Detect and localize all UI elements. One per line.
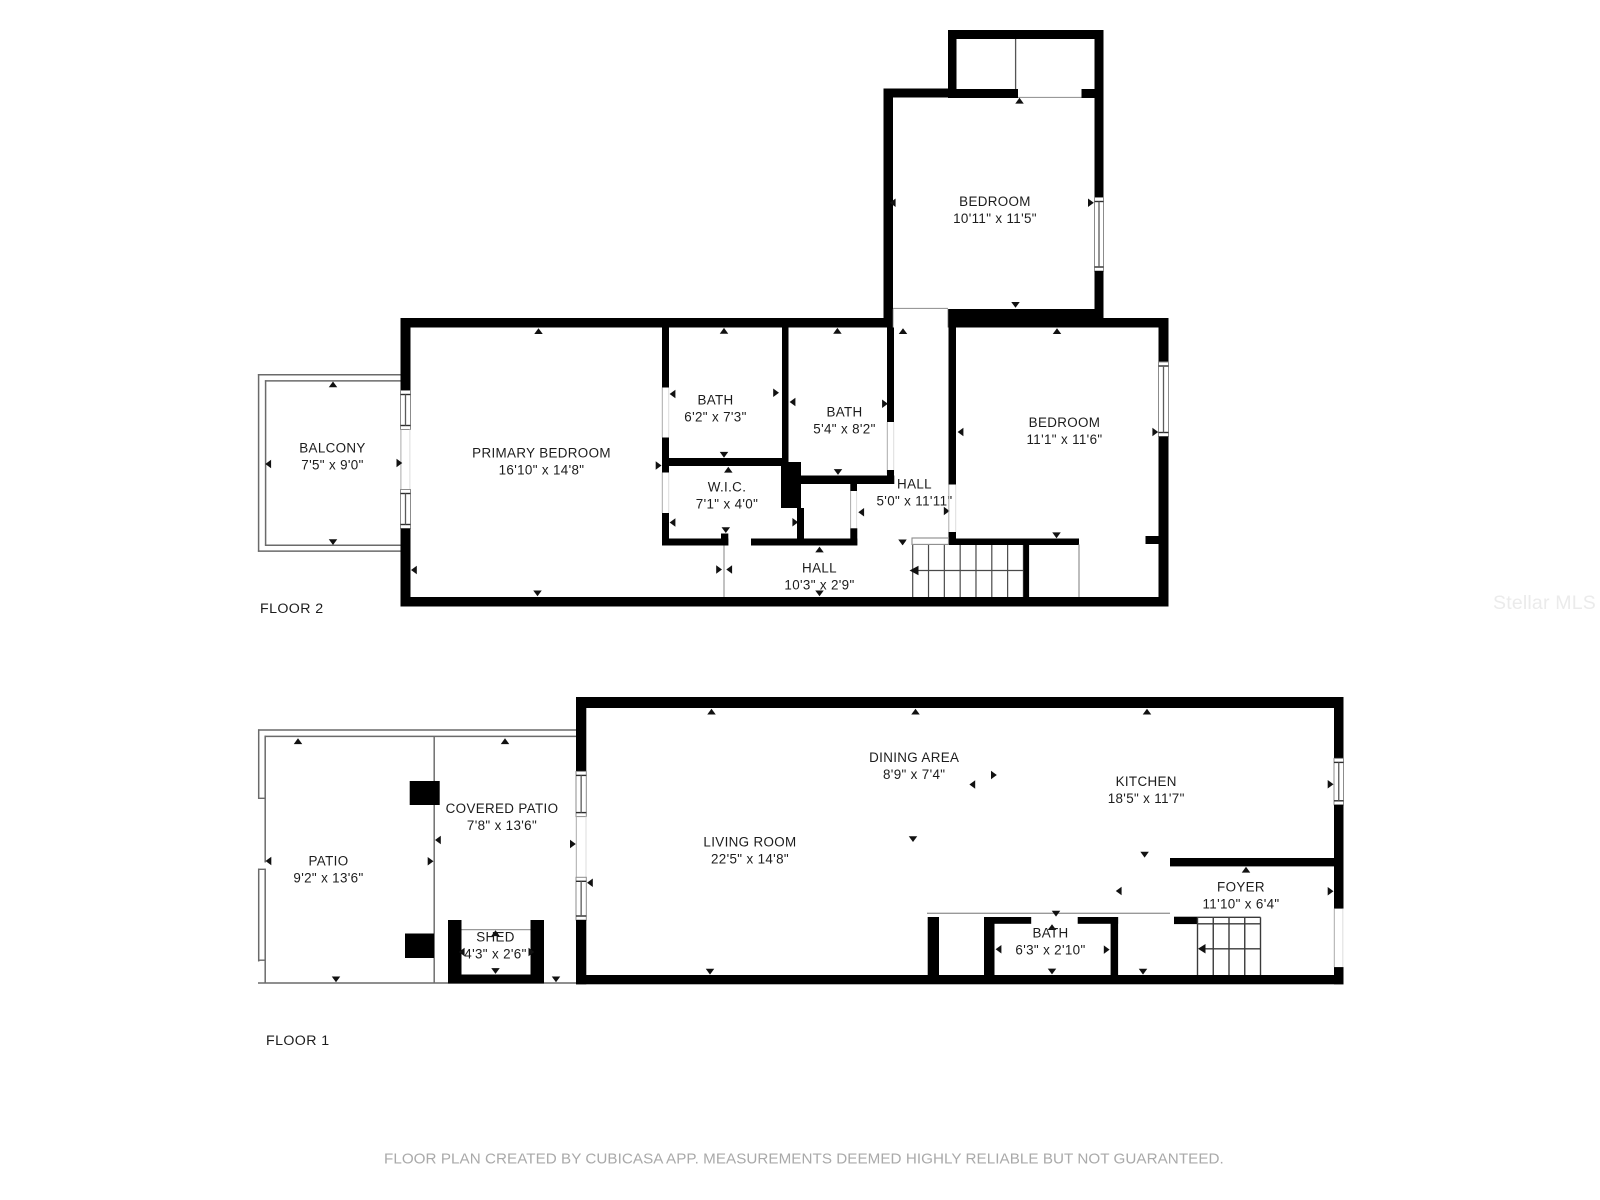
svg-text:FLOOR 1: FLOOR 1 bbox=[266, 1033, 330, 1049]
svg-text:5'0" x 11'11": 5'0" x 11'11" bbox=[876, 494, 952, 509]
svg-text:4'3" x 2'6": 4'3" x 2'6" bbox=[464, 947, 526, 962]
svg-text:PRIMARY BEDROOM: PRIMARY BEDROOM bbox=[472, 446, 611, 461]
svg-text:BATH: BATH bbox=[826, 405, 862, 420]
svg-text:7'8" x 13'6": 7'8" x 13'6" bbox=[467, 818, 537, 833]
svg-text:6'3" x 2'10": 6'3" x 2'10" bbox=[1015, 943, 1085, 958]
svg-text:FLOOR PLAN CREATED BY CUBICASA: FLOOR PLAN CREATED BY CUBICASA APP. MEAS… bbox=[384, 1151, 1224, 1168]
svg-text:8'9" x 7'4": 8'9" x 7'4" bbox=[883, 767, 945, 782]
svg-text:18'5" x 11'7": 18'5" x 11'7" bbox=[1108, 791, 1185, 806]
svg-text:BATH: BATH bbox=[697, 393, 733, 408]
svg-text:FLOOR 2: FLOOR 2 bbox=[260, 601, 324, 617]
svg-text:BEDROOM: BEDROOM bbox=[1029, 415, 1101, 430]
svg-text:7'5" x 9'0": 7'5" x 9'0" bbox=[301, 458, 363, 473]
svg-text:KITCHEN: KITCHEN bbox=[1116, 774, 1177, 789]
svg-text:10'3" x 2'9": 10'3" x 2'9" bbox=[784, 578, 854, 593]
svg-text:11'1" x 11'6": 11'1" x 11'6" bbox=[1026, 432, 1102, 447]
svg-text:BATH: BATH bbox=[1032, 926, 1068, 941]
svg-text:BALCONY: BALCONY bbox=[299, 441, 365, 456]
svg-text:DINING AREA: DINING AREA bbox=[869, 750, 959, 765]
svg-text:LIVING ROOM: LIVING ROOM bbox=[703, 835, 796, 850]
svg-text:22'5" x 14'8": 22'5" x 14'8" bbox=[711, 852, 789, 867]
svg-text:PATIO: PATIO bbox=[309, 854, 349, 869]
svg-text:9'2" x 13'6": 9'2" x 13'6" bbox=[293, 871, 363, 886]
svg-text:BEDROOM: BEDROOM bbox=[959, 194, 1031, 209]
svg-text:6'2" x 7'3": 6'2" x 7'3" bbox=[684, 410, 746, 425]
svg-text:11'10" x 6'4": 11'10" x 6'4" bbox=[1203, 897, 1280, 912]
svg-text:HALL: HALL bbox=[897, 477, 932, 492]
svg-text:FOYER: FOYER bbox=[1217, 880, 1265, 895]
svg-text:7'1" x 4'0": 7'1" x 4'0" bbox=[696, 497, 758, 512]
svg-text:16'10" x 14'8": 16'10" x 14'8" bbox=[499, 463, 585, 478]
svg-text:W.I.C.: W.I.C. bbox=[708, 480, 747, 495]
svg-text:Stellar MLS: Stellar MLS bbox=[1493, 592, 1596, 614]
svg-text:10'11" x 11'5": 10'11" x 11'5" bbox=[953, 211, 1037, 226]
svg-text:COVERED PATIO: COVERED PATIO bbox=[446, 801, 559, 816]
svg-text:5'4" x 8'2": 5'4" x 8'2" bbox=[813, 422, 875, 437]
svg-text:HALL: HALL bbox=[802, 561, 837, 576]
